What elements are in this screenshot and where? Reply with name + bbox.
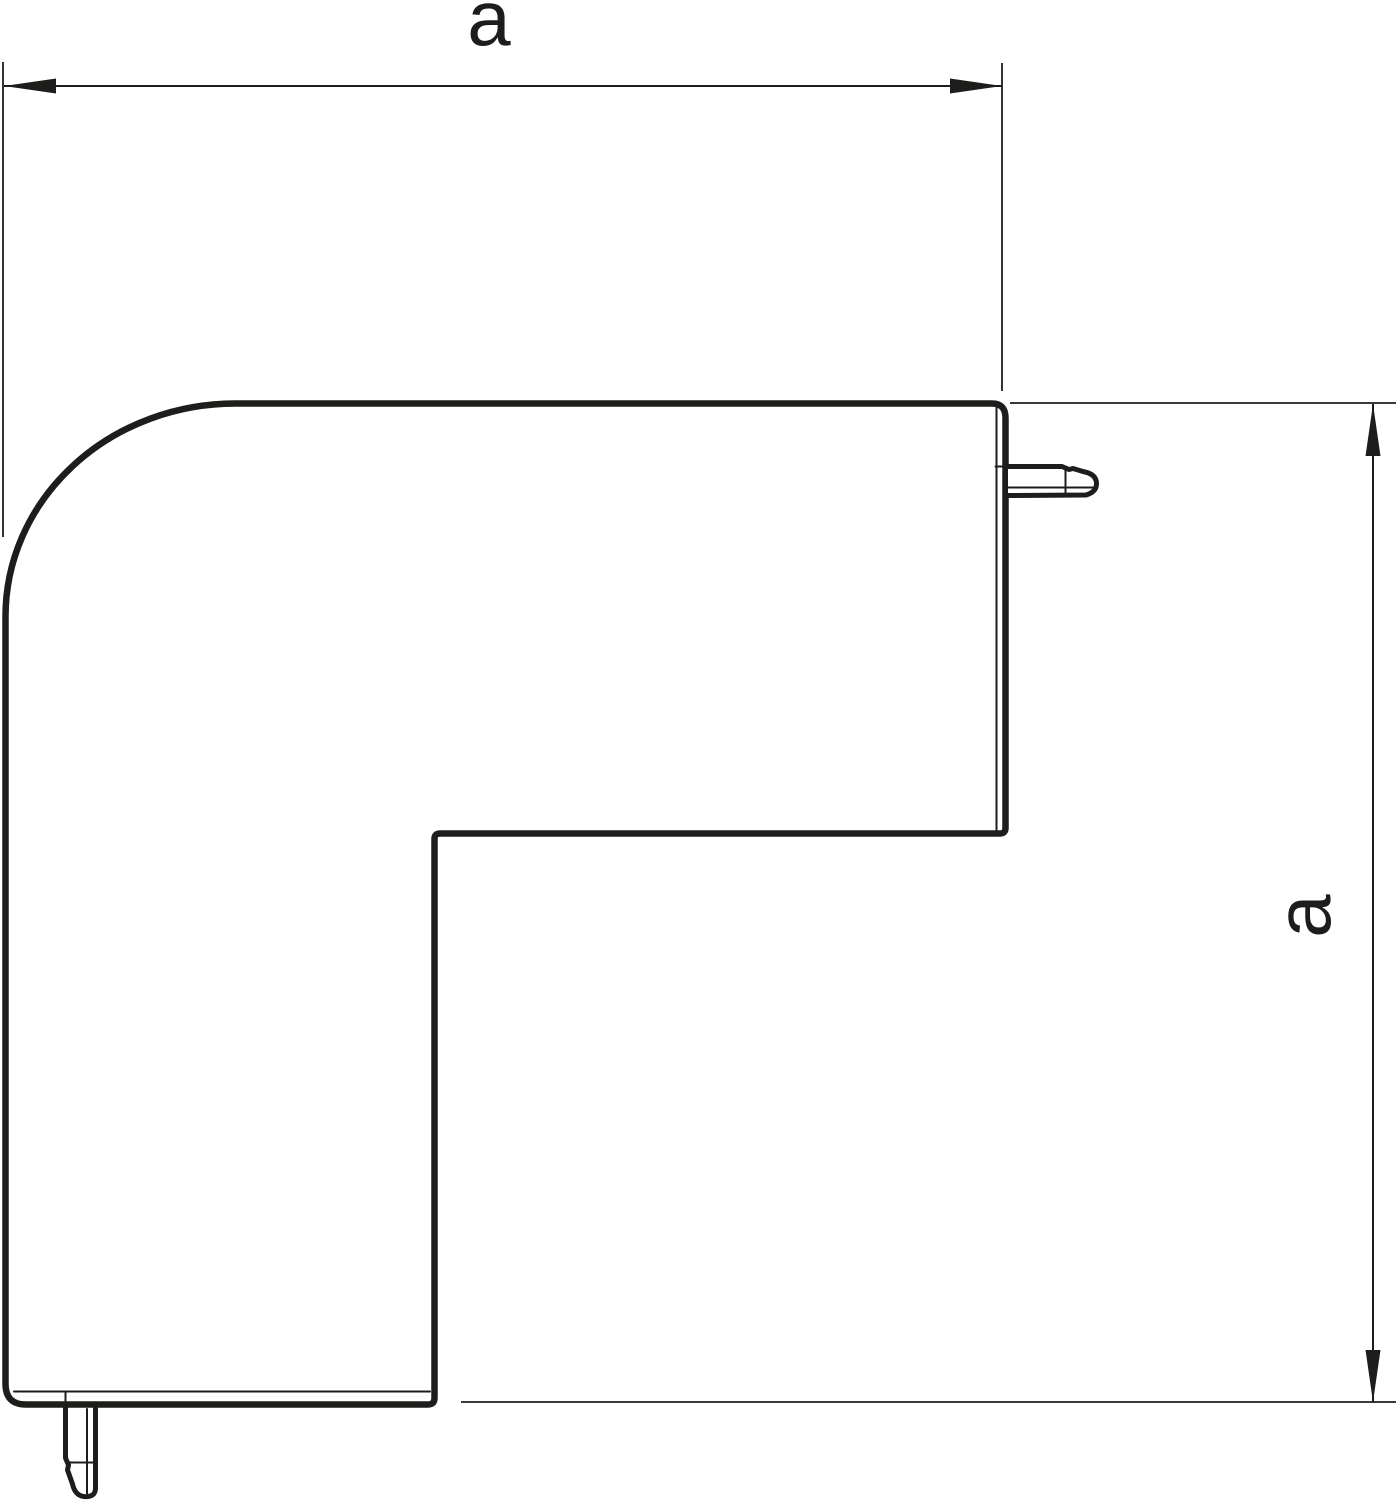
dimension-width-label: a	[467, 0, 511, 62]
arrowhead-right-icon	[950, 79, 1002, 94]
arrowhead-left-icon	[4, 79, 56, 94]
coupling-tab-bottom-outline	[66, 1408, 96, 1497]
dimension-drawing: a a	[0, 0, 1396, 1500]
arrowhead-up-icon	[1366, 404, 1381, 456]
dimension-height-label: a	[1259, 894, 1347, 938]
coupling-tab-right	[996, 467, 1097, 496]
corner-piece	[6, 404, 1097, 1497]
drawing-page: a a	[0, 0, 1396, 1500]
corner-piece-outline	[6, 404, 1006, 1405]
arrowhead-down-icon	[1366, 1350, 1381, 1402]
coupling-tab-right-outline	[1008, 467, 1097, 496]
